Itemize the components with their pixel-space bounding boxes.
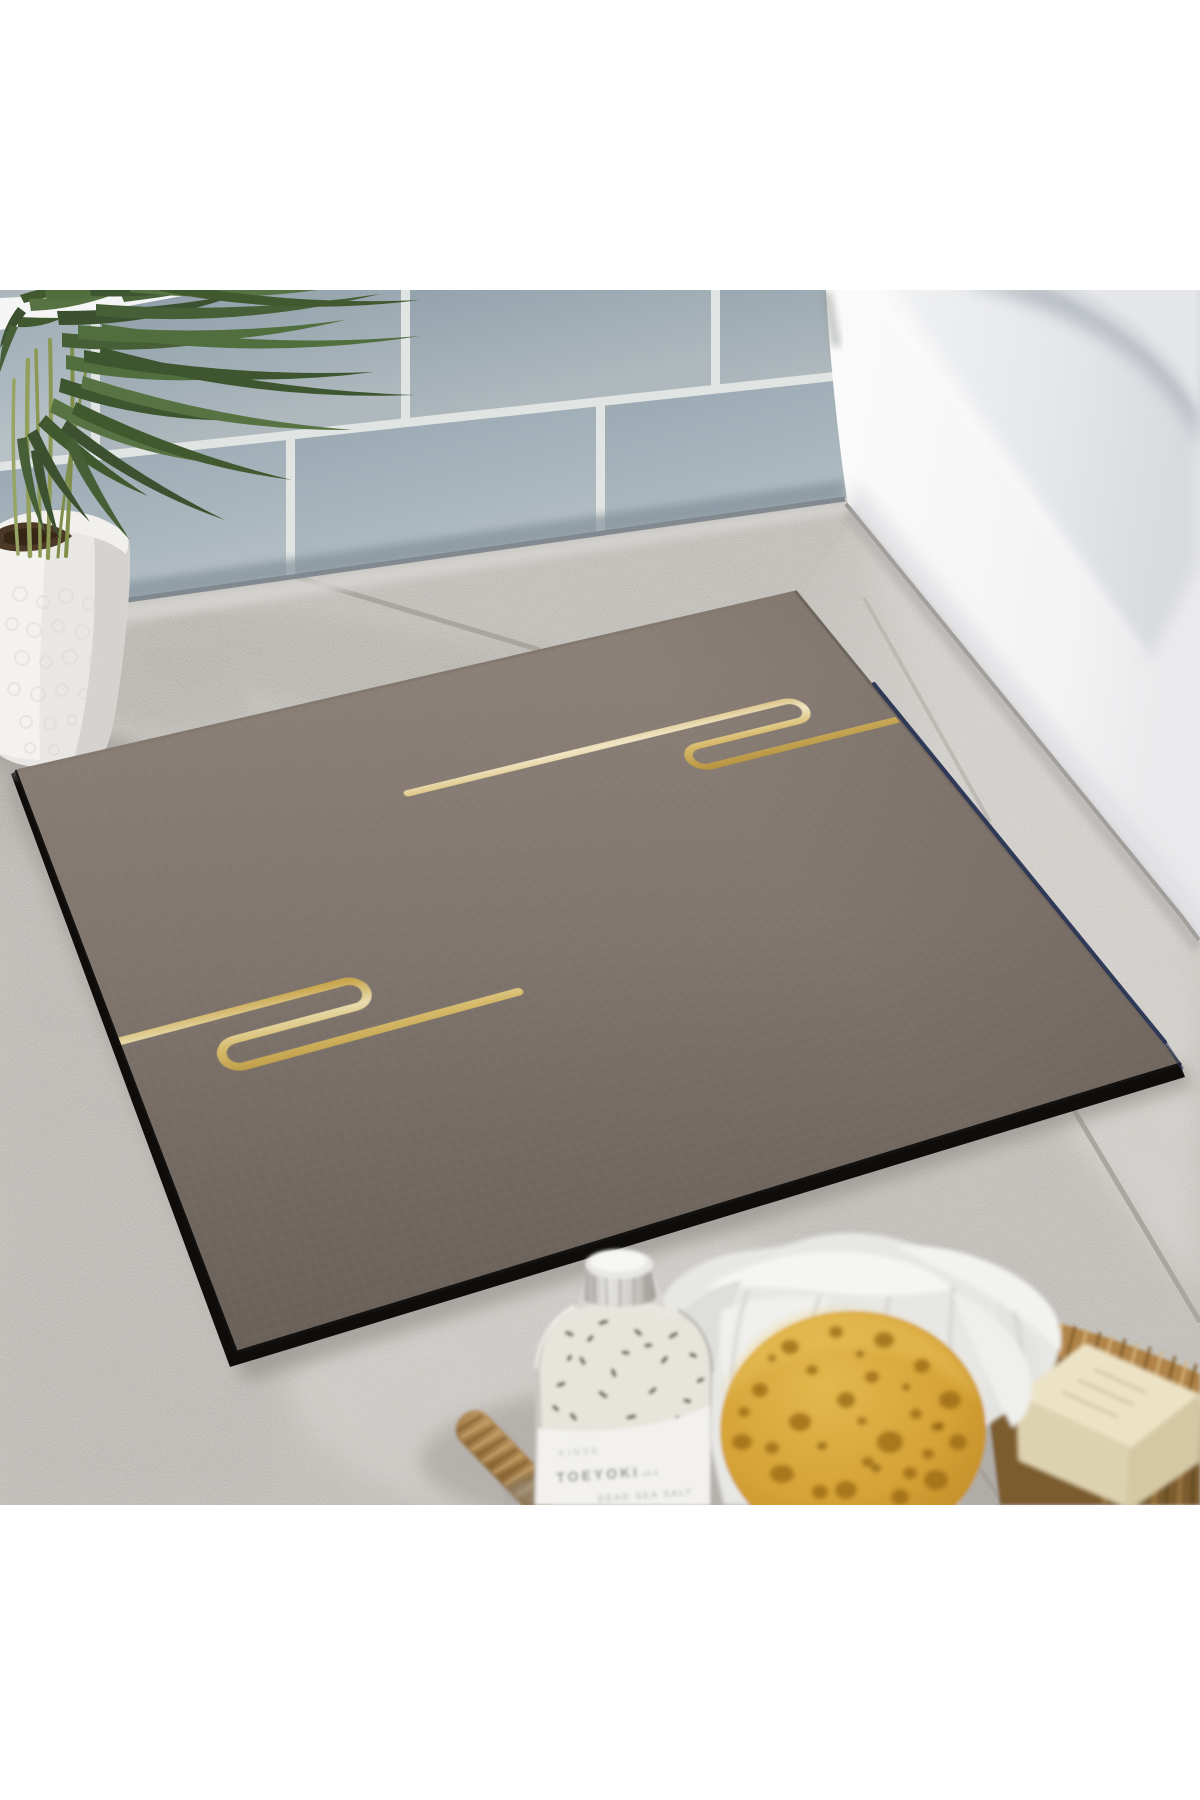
svg-text:no.4: no.4 — [642, 1468, 659, 1478]
